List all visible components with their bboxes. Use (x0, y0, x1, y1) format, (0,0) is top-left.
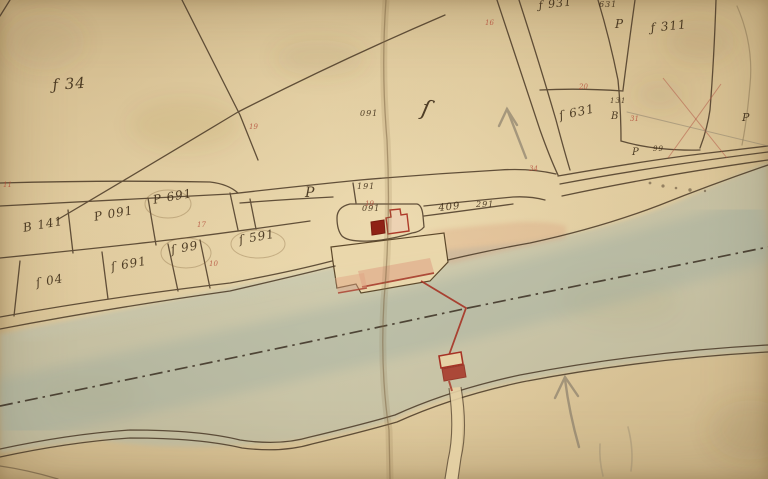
parcel-label: 191 (357, 183, 375, 191)
survey-number-red: 10 (209, 261, 218, 268)
parcel-label: 631 (599, 1, 617, 9)
parcel-label: 091 (360, 110, 378, 118)
parcel-label: ſ 691 (110, 255, 148, 273)
parcel-label: B (611, 112, 619, 122)
parcel-label: P 091 (93, 204, 134, 223)
survey-number-red: 17 (197, 222, 206, 229)
survey-number-red: 19 (365, 201, 374, 208)
parcel-label: B 141 (22, 215, 64, 234)
parcel-label: P 691 (152, 187, 193, 206)
parcel-label: ſ 99 (170, 239, 199, 256)
survey-number-red: 20 (579, 84, 588, 91)
survey-number-red: 34 (529, 166, 538, 173)
parcel-label: ſ 631 (558, 102, 596, 121)
parcel-label: ƒ 931 (538, 0, 573, 11)
parcel-label: 99 (653, 146, 664, 153)
survey-number-red: 31 (630, 116, 639, 123)
parcel-label: ƒ 34 (52, 76, 86, 93)
parcel-label: ƒ 311 (650, 18, 687, 34)
parcel-label: 131 (610, 98, 626, 105)
parcel-label: P (305, 186, 315, 200)
map-labels: ƒ 34 B 141 P 091 P 691 ſ 04 ſ 691 ſ 99 ſ… (0, 0, 768, 479)
survey-number-red: 19 (249, 124, 258, 131)
cadastral-map-sheet: ƒ 34 B 141 P 091 P 691 ſ 04 ſ 691 ſ 99 ſ… (0, 0, 768, 479)
parcel-label: P (632, 148, 640, 158)
parcel-label: ſ (419, 98, 433, 121)
parcel-label: P (615, 18, 624, 30)
parcel-label: ſ 04 (35, 272, 64, 289)
survey-number-red: 16 (485, 20, 494, 27)
parcel-label: 291 (476, 201, 494, 209)
parcel-label: 409 (438, 202, 461, 214)
parcel-label: P (742, 112, 750, 123)
survey-number-red: 11 (3, 182, 12, 189)
parcel-label: ſ 591 (238, 228, 276, 246)
